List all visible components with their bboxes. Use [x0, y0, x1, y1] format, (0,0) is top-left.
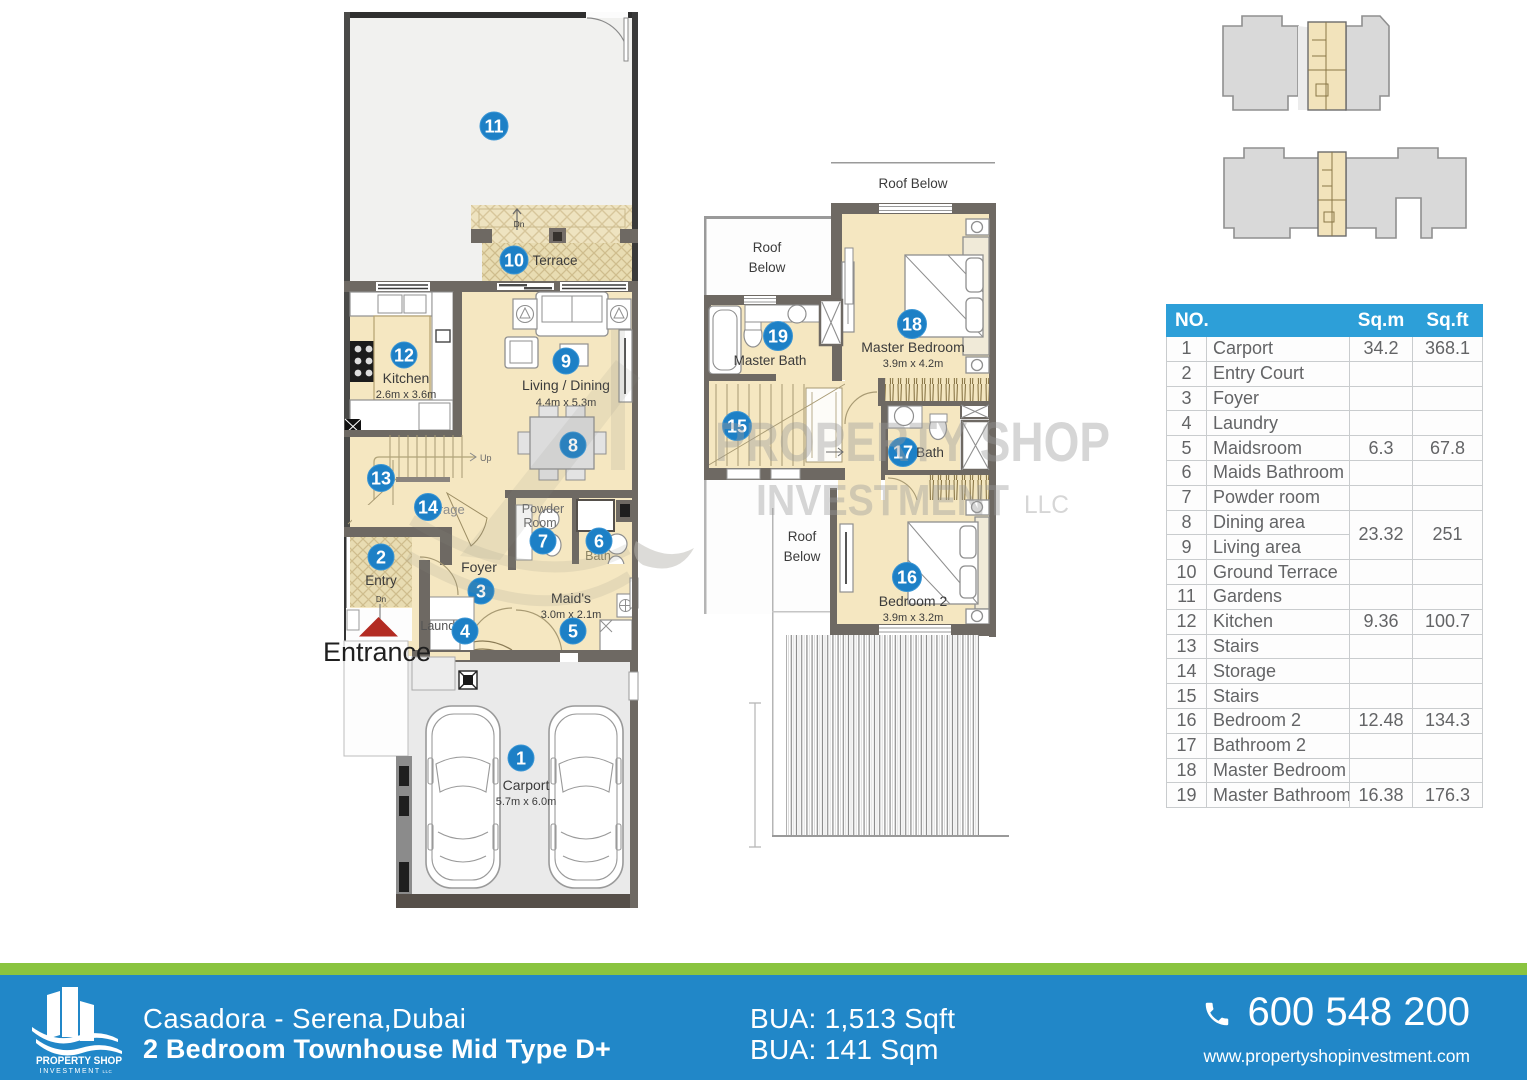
svg-text:Entry: Entry	[365, 573, 397, 588]
svg-text:16: 16	[897, 567, 917, 587]
svg-text:10: 10	[504, 250, 524, 270]
svg-text:Entrance: Entrance	[323, 637, 431, 667]
svg-text:Terrace: Terrace	[532, 253, 577, 268]
svg-text:3.9m x 3.2m: 3.9m x 3.2m	[883, 612, 944, 624]
svg-text:LLC: LLC	[1024, 491, 1069, 519]
svg-text:PROPERTY SHOP: PROPERTY SHOP	[36, 1055, 122, 1067]
svg-text:Dn: Dn	[514, 219, 525, 229]
svg-text:19: 19	[768, 326, 788, 346]
svg-text:PROPERTY SHOP: PROPERTY SHOP	[715, 410, 1110, 473]
svg-text:Up: Up	[480, 453, 492, 463]
svg-text:Bedroom 2: Bedroom 2	[879, 593, 948, 609]
svg-text:Dn: Dn	[376, 595, 386, 604]
svg-text:Kitchen: Kitchen	[383, 370, 430, 386]
svg-text:3.9m x 4.2m: 3.9m x 4.2m	[883, 358, 944, 370]
svg-text:5.7m x 6.0m: 5.7m x 6.0m	[496, 796, 557, 808]
svg-text:4: 4	[460, 621, 470, 641]
svg-text:INVESTMENT LLC: INVESTMENT LLC	[40, 1068, 113, 1073]
svg-text:Roof Below: Roof Below	[878, 176, 947, 191]
svg-text:Below: Below	[749, 260, 786, 275]
svg-text:Roof: Roof	[753, 240, 782, 255]
svg-text:1: 1	[516, 748, 526, 768]
svg-text:2: 2	[376, 547, 386, 567]
svg-text:6: 6	[594, 531, 604, 551]
svg-text:Roof: Roof	[788, 529, 817, 544]
svg-text:9: 9	[561, 351, 571, 371]
svg-text:14: 14	[418, 497, 438, 517]
svg-text:11: 11	[484, 116, 503, 136]
svg-text:7: 7	[538, 531, 548, 551]
svg-text:Master Bedroom: Master Bedroom	[861, 339, 964, 355]
svg-text:18: 18	[902, 314, 922, 334]
svg-text:12: 12	[394, 345, 414, 365]
svg-text:13: 13	[371, 468, 391, 488]
svg-text:INVESTMENT: INVESTMENT	[756, 476, 1009, 525]
svg-text:Carport: Carport	[503, 777, 550, 793]
svg-text:2.6m x 3.6m: 2.6m x 3.6m	[376, 389, 437, 401]
svg-text:Below: Below	[784, 549, 821, 564]
svg-text:Master Bath: Master Bath	[734, 353, 807, 368]
svg-text:5: 5	[568, 621, 578, 641]
